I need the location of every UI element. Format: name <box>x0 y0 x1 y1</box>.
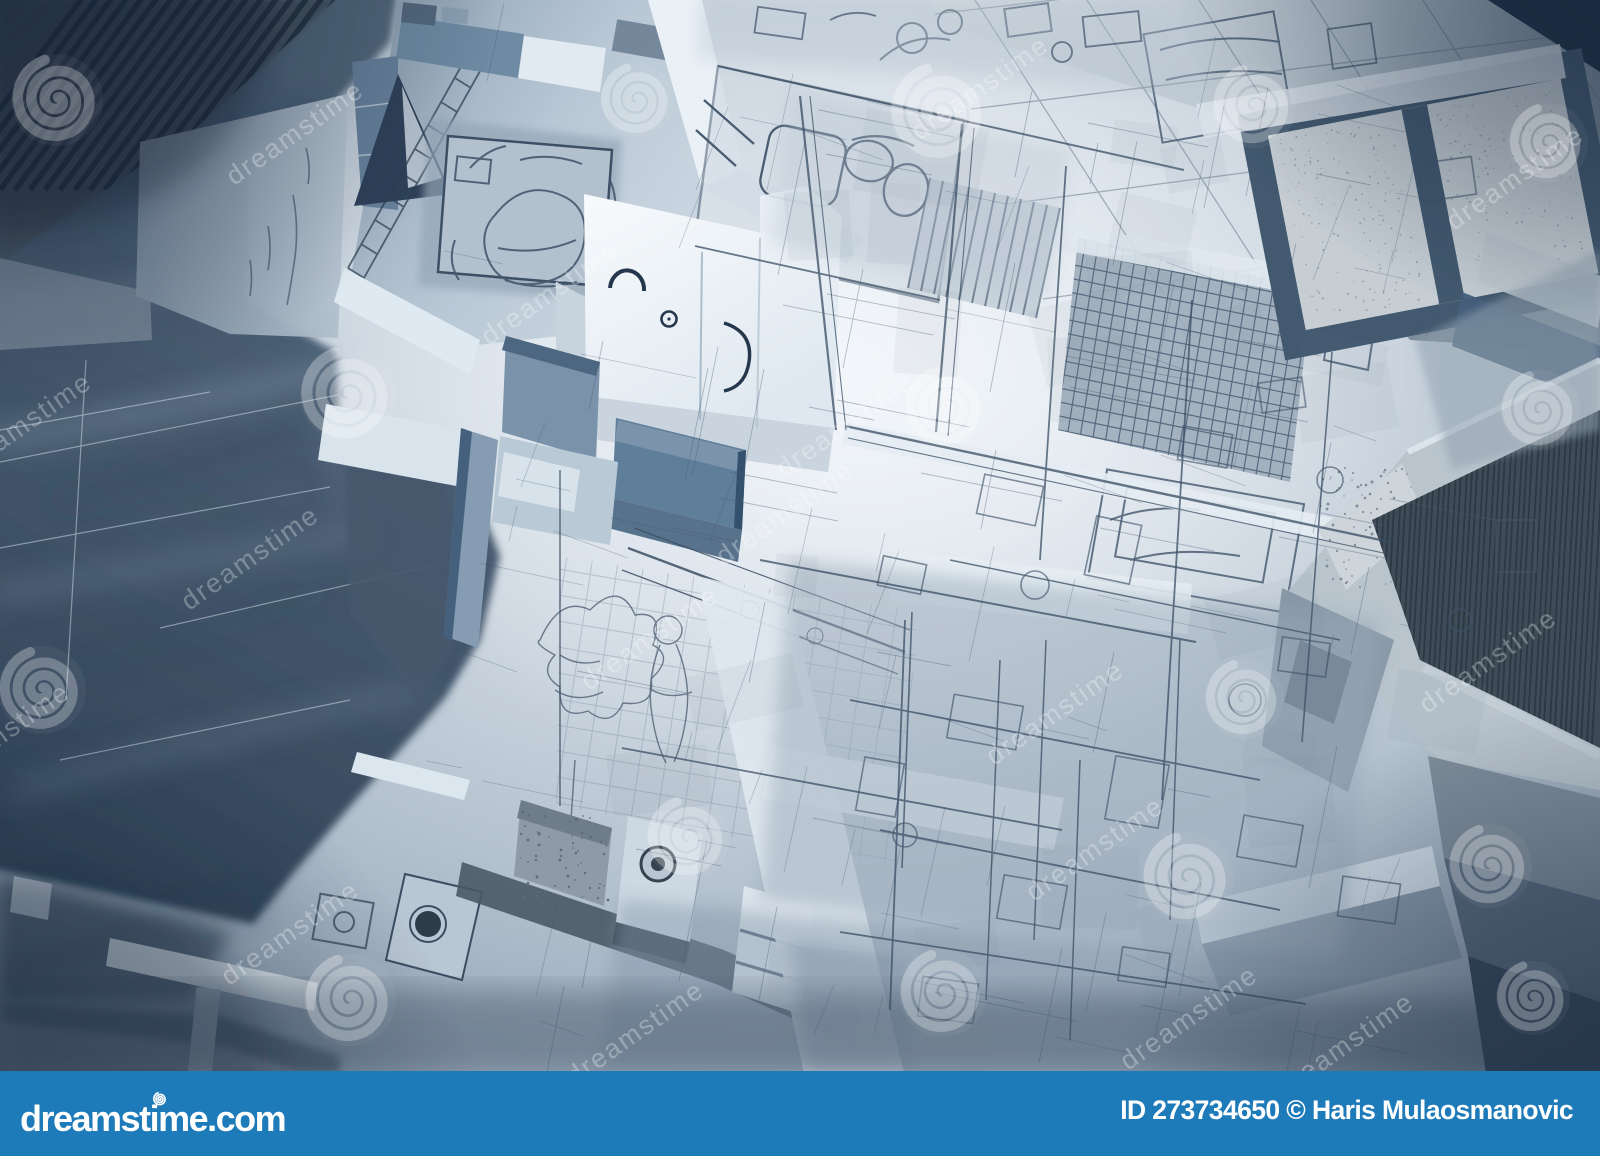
svg-text:dreamstime.com: dreamstime.com <box>20 1098 285 1139</box>
svg-text:ID 273734650 © Haris Mulaosman: ID 273734650 © Haris Mulaosmanovic <box>1120 1095 1573 1125</box>
